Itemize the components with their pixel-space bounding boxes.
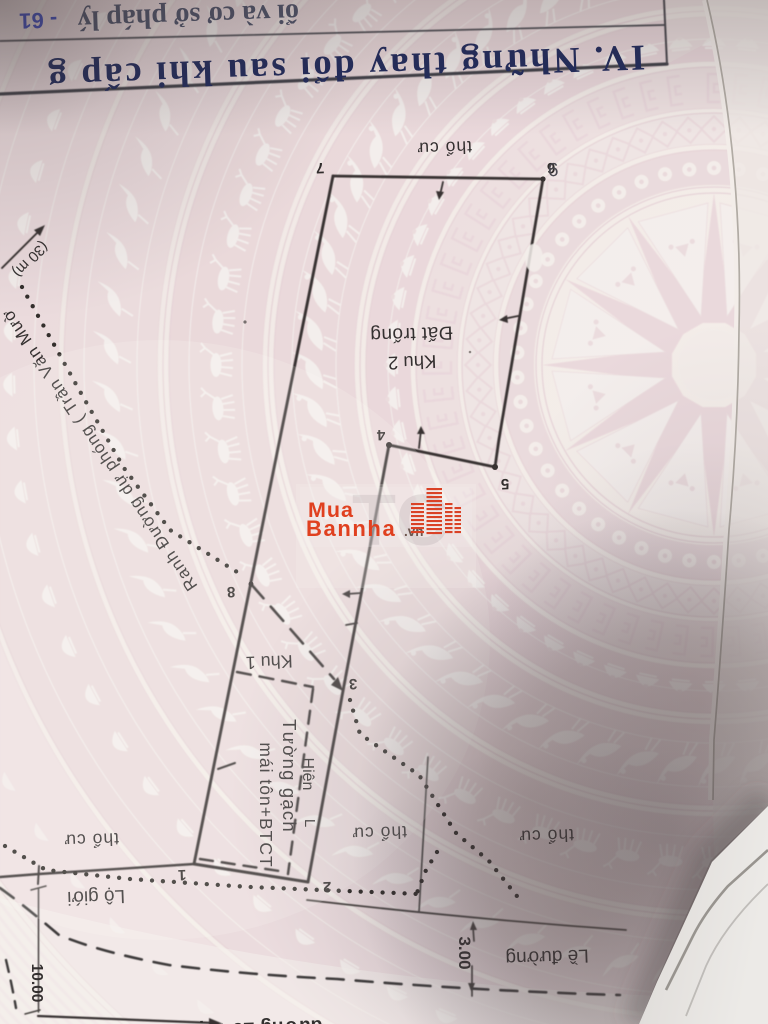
svg-text:5: 5 [501,475,510,492]
svg-text:thổ cư: thổ cư [416,137,472,159]
svg-text:Bannha: Bannha [306,516,396,541]
svg-text:Đất trống: Đất trống [370,322,453,346]
svg-text:9: 9 [548,158,559,179]
svg-text:Khu 2: Khu 2 [388,351,437,374]
svg-text:10.00: 10.00 [28,964,45,1003]
